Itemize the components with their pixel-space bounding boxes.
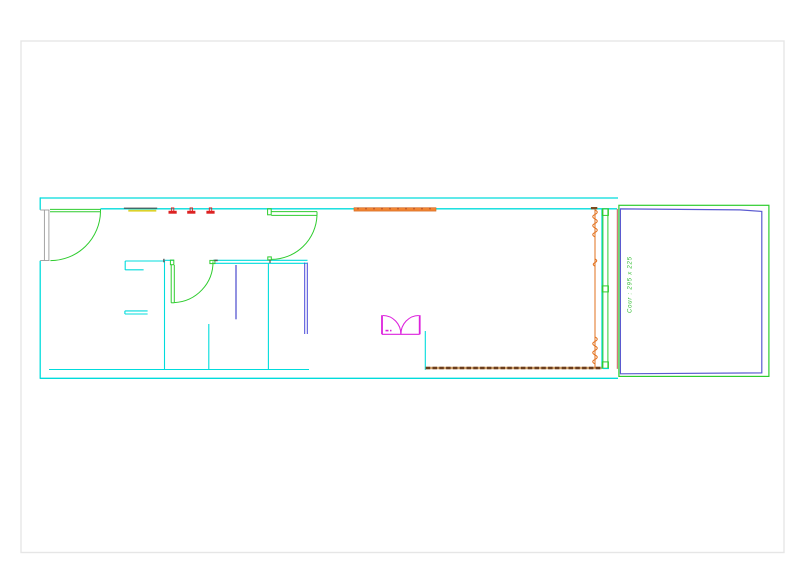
svg-text:Cour : 295 x 225: Cour : 295 x 225 — [628, 256, 634, 313]
